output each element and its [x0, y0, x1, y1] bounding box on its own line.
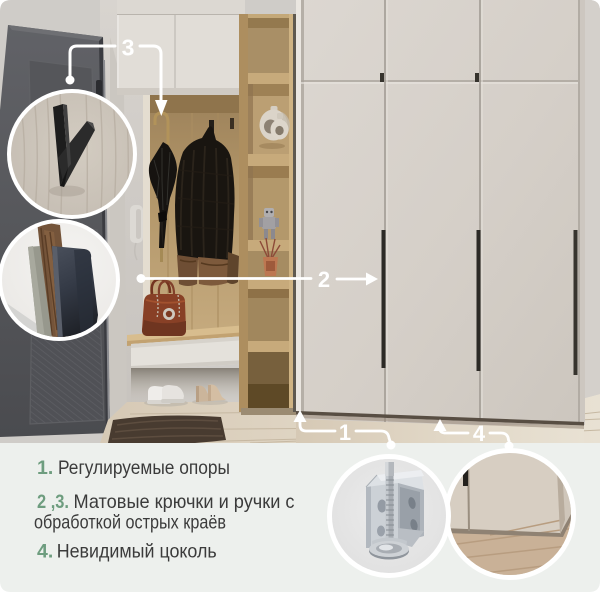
svg-text:1: 1 — [339, 420, 351, 445]
svg-text:2 ,3.: 2 ,3. — [37, 491, 69, 513]
svg-text:Невидимый цоколь: Невидимый цоколь — [57, 541, 217, 563]
svg-text:4.: 4. — [37, 541, 53, 563]
svg-text:2: 2 — [318, 267, 330, 292]
svg-text:1.: 1. — [37, 457, 53, 479]
svg-text:Регулируемые опоры: Регулируемые опоры — [58, 457, 230, 479]
svg-text:обработкой острых краёв: обработкой острых краёв — [34, 512, 226, 534]
svg-text:4: 4 — [473, 421, 486, 446]
svg-text:3: 3 — [122, 35, 135, 61]
svg-text:Матовые крючки и ручки с: Матовые крючки и ручки с — [74, 491, 295, 513]
